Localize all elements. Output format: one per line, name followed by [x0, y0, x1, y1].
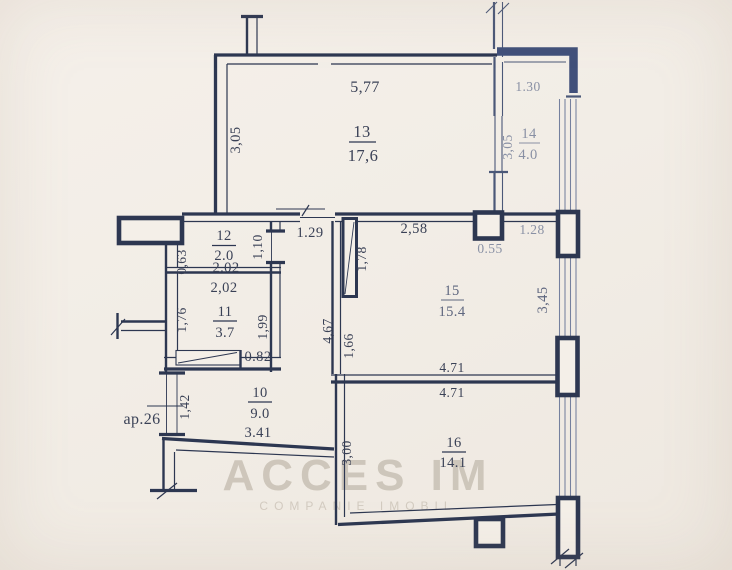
- room15-area: 15.4: [439, 304, 466, 320]
- room10-area: 9.0: [250, 406, 269, 422]
- column: [476, 519, 503, 546]
- dim-room15-wall: 1,66: [341, 333, 356, 358]
- window-pier: [558, 498, 578, 557]
- dim-room11-height-left: 1,76: [174, 307, 189, 332]
- column: [475, 213, 502, 239]
- dim-room11-height-right: 1,99: [255, 314, 270, 339]
- wall-segment: [338, 514, 559, 525]
- vent-shaft: [119, 218, 182, 243]
- window-glazing: [560, 99, 577, 498]
- dim-room15-door: 1,78: [354, 246, 369, 271]
- door-jamb: [266, 231, 285, 263]
- room16-number: 16: [446, 435, 461, 451]
- wall-rooms15-16: [331, 375, 557, 382]
- dim-balcony-top: 1.30: [515, 79, 540, 94]
- floor-plan-photo: ACCES IM COMPANIE IMOBIL: [0, 0, 732, 570]
- dim-room12-width: 2.02: [213, 260, 240, 276]
- dim-column-width: 0.55: [477, 241, 502, 256]
- floor-plan-drawing: ACCES IM COMPANIE IMOBIL: [0, 0, 732, 570]
- door-threshold: [167, 373, 178, 434]
- room11-area: 3.7: [215, 325, 234, 341]
- tick-mark: [302, 205, 309, 216]
- dim-room16-height: 3,00: [339, 440, 354, 465]
- dim-room16-width: 4.71: [439, 385, 464, 400]
- dim-room11-width: 2,02: [211, 280, 238, 296]
- window-room15: [560, 256, 577, 338]
- labels: 5,77 3,05 13 17,6 1.30 3,05 14 4.0 1.29 …: [123, 79, 551, 471]
- window-room16: [560, 395, 577, 498]
- dim-room15-width: 4.71: [439, 360, 464, 375]
- dim-door-room13: 1.29: [297, 225, 324, 241]
- apartment-label: ap.26: [123, 411, 160, 428]
- dim-room12-door: 1,10: [250, 234, 265, 259]
- room15-number: 15: [444, 283, 459, 299]
- dim-hall-height: 4,67: [320, 318, 335, 343]
- break-mark: [486, 2, 509, 14]
- dim-top-width: 5,77: [350, 79, 380, 96]
- dim-hall-width: 3.41: [245, 425, 272, 441]
- wall-stub-top: [241, 17, 263, 56]
- wall-below-entry: [150, 437, 197, 499]
- room13-area: 17,6: [348, 146, 378, 165]
- dim-room14-height: 3,05: [500, 134, 515, 159]
- window-pier: [558, 338, 578, 395]
- room12-number: 12: [216, 228, 231, 244]
- window-pier: [558, 212, 578, 256]
- dim-window-height: 3,45: [535, 287, 551, 314]
- room14-area: 4.0: [518, 147, 537, 163]
- dim-room13-height: 3,05: [228, 127, 244, 154]
- room14-number: 14: [521, 126, 537, 142]
- room16-area: 14.1: [440, 455, 467, 471]
- dim-room15-top-left: 2,58: [401, 221, 428, 237]
- dim-shaft-offset: 0,63: [174, 249, 189, 274]
- window-room14: [560, 99, 577, 212]
- dim-room11-door: 0.82: [245, 349, 272, 365]
- room13-number: 13: [353, 122, 370, 141]
- dim-entry-door: 1,42: [177, 394, 192, 419]
- room11-number: 11: [218, 304, 233, 320]
- room10-number: 10: [252, 385, 267, 401]
- watermark-line2: COMPANIE IMOBIL: [259, 499, 456, 513]
- wall-balcony: [486, 2, 581, 212]
- dim-room15-top-right: 1.28: [519, 222, 544, 237]
